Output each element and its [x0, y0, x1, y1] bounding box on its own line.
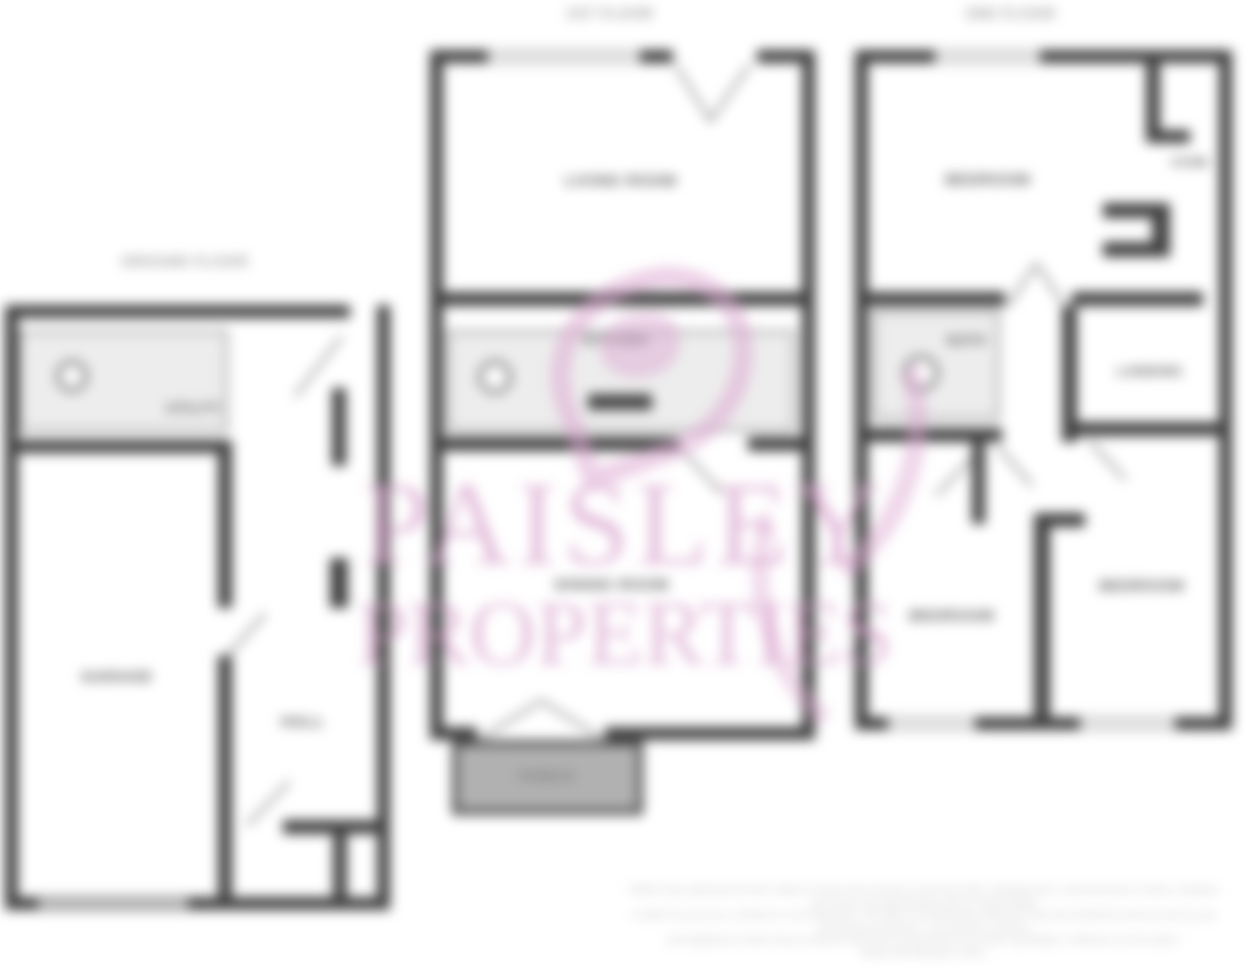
- door-swing-line: [1035, 263, 1065, 306]
- watermark-brand-line1: PAISLEY: [363, 455, 887, 593]
- room-label-porch: PORCH: [519, 768, 575, 784]
- door-swing-line: [997, 446, 1033, 487]
- room-label-landing: LANDING: [1117, 364, 1183, 379]
- wall: [1034, 513, 1085, 527]
- wall: [1175, 717, 1232, 730]
- door-swing-line: [1089, 440, 1127, 480]
- wall: [333, 834, 347, 900]
- stair-detail: [330, 558, 348, 608]
- wall: [640, 50, 673, 63]
- floor-title-ground: GROUND FLOOR: [121, 253, 248, 269]
- room-label-hall: HALL: [281, 714, 325, 731]
- wall: [430, 727, 477, 740]
- room-label-bedroom-1: BEDROOM: [945, 172, 1030, 189]
- sink-icon: [56, 360, 88, 392]
- wall: [1219, 50, 1232, 730]
- room-label-bath: BATH: [947, 333, 986, 348]
- floor-title-first: 1ST FLOOR: [566, 5, 654, 21]
- window: [1080, 717, 1175, 730]
- wall: [218, 655, 232, 897]
- wall: [1072, 422, 1222, 436]
- wall: [332, 388, 346, 466]
- door-swing-line: [480, 700, 542, 740]
- wall: [218, 448, 232, 608]
- wall: [1103, 242, 1170, 257]
- disclaimer-line: Made with Metropix ©2021: [628, 947, 1220, 960]
- wall: [1072, 292, 1203, 306]
- door-swing-line: [935, 457, 973, 496]
- room-label-living-room: LIVING ROOM: [565, 173, 677, 190]
- disclaimer-line: Whilst every attempt has been made to en…: [628, 884, 1220, 909]
- floor-title-second: 2ND FLOOR: [966, 5, 1056, 21]
- door-swing-line: [675, 65, 713, 123]
- wall: [5, 305, 350, 318]
- floorplan-image: GROUND FLOOR 1ST FLOOR 2ND FLOOR UTILITY…: [0, 0, 1256, 973]
- wall: [1103, 203, 1170, 218]
- disclaimer-line: is taken for any error, omission or mis-…: [628, 909, 1220, 934]
- floorplan-canvas: GROUND FLOOR 1ST FLOOR 2ND FLOOR UTILITY…: [0, 0, 1256, 973]
- wall: [5, 440, 232, 453]
- wall: [5, 305, 18, 910]
- wall: [855, 292, 1005, 306]
- watermark-brand-line2: PROPERTIES: [357, 580, 893, 686]
- wall: [283, 820, 377, 834]
- wall: [1146, 130, 1190, 143]
- disclaimer-line: and appliances shown have not been teste…: [628, 934, 1220, 947]
- disclaimer-text: Whilst every attempt has been made to en…: [628, 884, 1220, 959]
- wall: [1040, 50, 1232, 63]
- garage-door-window: [38, 899, 188, 908]
- wall: [1152, 218, 1170, 242]
- wall: [1146, 63, 1160, 133]
- utility-worktop: [18, 330, 228, 432]
- room-label-bedroom-3: BEDROOM: [1099, 578, 1184, 595]
- room-label-garage: GARAGE: [81, 669, 153, 686]
- wall: [1034, 513, 1050, 730]
- room-label-utility: UTILITY: [166, 401, 222, 416]
- door-swing-line: [223, 612, 267, 660]
- door-swing-line: [540, 699, 602, 739]
- room-label-store: STORE: [1171, 157, 1209, 169]
- wall: [972, 442, 985, 524]
- window: [935, 50, 1040, 63]
- wall: [605, 727, 815, 740]
- door-swing-line: [709, 64, 751, 122]
- window: [488, 50, 640, 63]
- sink-icon: [478, 360, 512, 394]
- door-swing-line: [1007, 263, 1037, 306]
- wall: [975, 717, 1080, 730]
